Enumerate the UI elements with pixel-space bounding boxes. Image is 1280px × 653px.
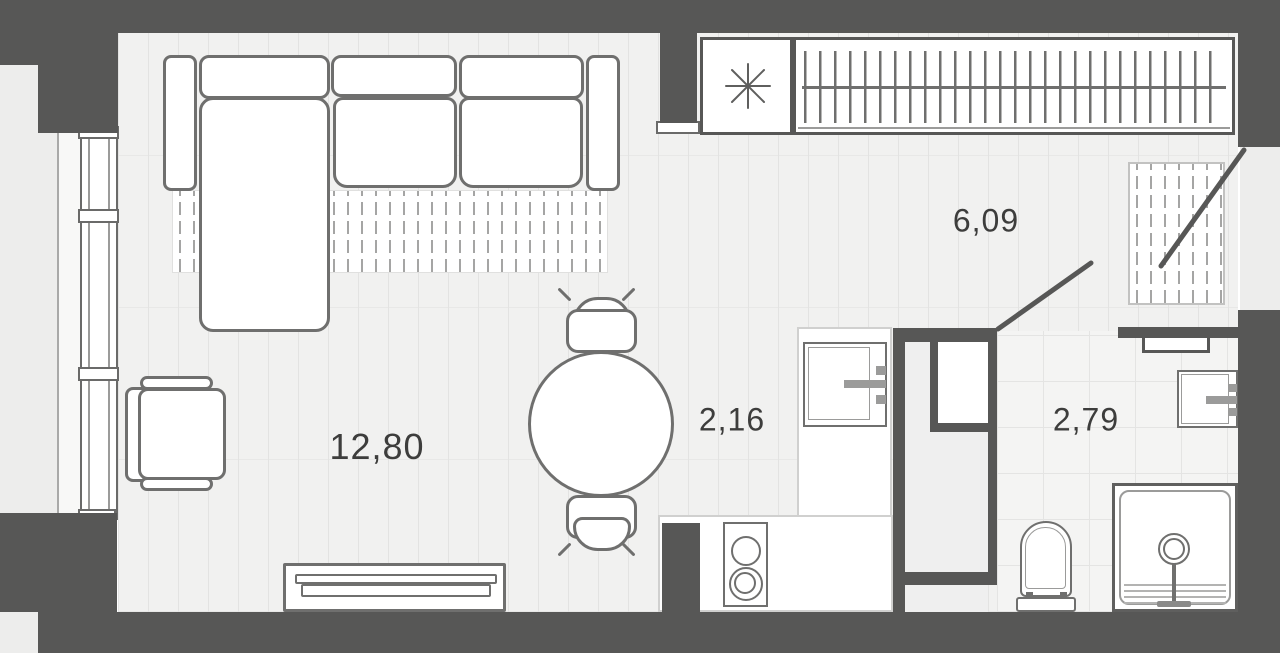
wall-corner-chunk bbox=[0, 0, 38, 65]
kitchen-sink-unit bbox=[803, 342, 887, 427]
window-glass-line bbox=[108, 130, 110, 518]
window-mullion bbox=[78, 209, 119, 223]
dining-table bbox=[528, 351, 674, 497]
sofa-chaise-lounge bbox=[199, 97, 330, 332]
sofa-seat-cushion bbox=[459, 97, 583, 188]
toilet-cistern bbox=[1016, 597, 1076, 612]
basin-faucet-icon bbox=[1206, 396, 1237, 404]
wall-counter-stub bbox=[662, 523, 700, 612]
shower-head-inner bbox=[1163, 538, 1185, 560]
duct-shaft-box bbox=[938, 342, 988, 423]
window-glass-line bbox=[88, 130, 90, 518]
window-sill-strip bbox=[59, 128, 80, 520]
wall-right-lower bbox=[1238, 310, 1280, 653]
burner-inner-ring bbox=[734, 572, 756, 594]
kitchen-faucet-icon bbox=[844, 380, 886, 388]
sofa-back-cushion bbox=[331, 55, 457, 97]
wall-shaft-box-left bbox=[930, 342, 938, 432]
wall-shaft-box-bottom bbox=[930, 423, 997, 432]
dining-chair-seat bbox=[566, 309, 637, 353]
basin-fitting bbox=[1229, 408, 1237, 416]
toilet-bowl-inner bbox=[1025, 527, 1066, 589]
kitchen-sink-fitting bbox=[876, 395, 886, 404]
panoramic-window bbox=[80, 128, 118, 520]
wardrobe bbox=[793, 37, 1235, 135]
kitchen-sink-fitting bbox=[876, 366, 886, 375]
wall-bathroom-top bbox=[1118, 327, 1240, 338]
wall-shaft-left bbox=[893, 328, 905, 613]
shower-tray bbox=[1112, 483, 1238, 612]
sofa-back-cushion bbox=[199, 55, 330, 99]
shower-head-icon bbox=[1158, 533, 1190, 565]
sofa-armrest-right bbox=[586, 55, 620, 191]
wall-bottom bbox=[38, 612, 1280, 653]
window-mullion bbox=[78, 367, 119, 381]
sofa-armrest-left bbox=[163, 55, 197, 191]
area-label-kitchen: 2,16 bbox=[699, 402, 765, 439]
vent-asterisk-icon bbox=[723, 61, 773, 111]
wall-left-lower bbox=[0, 513, 117, 612]
entrance-doormat bbox=[1128, 162, 1225, 305]
wall-shaft-bottom bbox=[905, 572, 997, 585]
wardrobe-door-track bbox=[798, 127, 1230, 129]
utility-box bbox=[700, 37, 793, 135]
area-label-bathroom: 2,79 bbox=[1053, 402, 1119, 439]
wall-shaft-right bbox=[988, 342, 997, 577]
burner-icon bbox=[729, 567, 763, 601]
burner-icon bbox=[731, 536, 761, 566]
tv-screen bbox=[295, 574, 497, 584]
wardrobe-rail-icon bbox=[802, 86, 1226, 89]
floor-plan: 12,80 2,16 6,09 2,79 bbox=[0, 0, 1280, 653]
area-label-living: 12,80 bbox=[329, 426, 424, 468]
wall-shaft-top bbox=[893, 328, 997, 342]
area-label-hallway: 6,09 bbox=[953, 203, 1019, 240]
washbasin bbox=[1177, 370, 1238, 428]
wall-top-left-block bbox=[38, 0, 118, 133]
entrance-corridor-exterior bbox=[1240, 147, 1280, 310]
cooktop bbox=[723, 522, 768, 607]
wall-top bbox=[0, 0, 1280, 33]
basin-fitting bbox=[1229, 384, 1237, 392]
tv-base bbox=[301, 584, 491, 597]
toilet-bowl bbox=[1020, 521, 1072, 597]
sofa-back-cushion bbox=[459, 55, 584, 99]
sofa-seat-cushion bbox=[333, 97, 457, 188]
bathroom-door-pocket bbox=[1142, 337, 1210, 353]
wall-hallway-stub bbox=[660, 33, 697, 123]
armchair-seat bbox=[138, 388, 226, 480]
shower-foot-bar bbox=[1157, 601, 1191, 607]
wall-right-upper bbox=[1238, 0, 1280, 147]
shower-stem bbox=[1172, 562, 1176, 604]
